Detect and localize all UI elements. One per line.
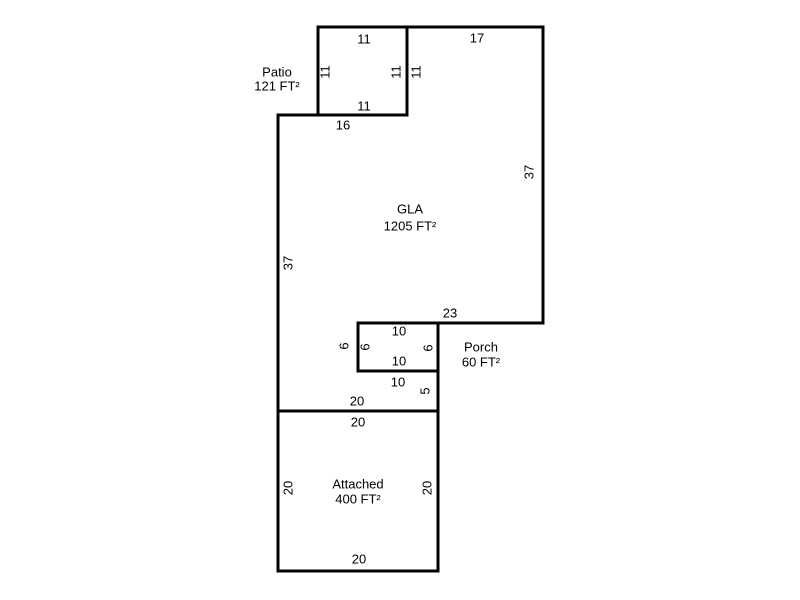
dim-label-0-11: 11 [357,32,371,47]
dim-label-6-16: 16 [336,118,350,133]
area-labels: Patio121 FT²GLA1205 FT²Porch60 FT²Attach… [254,65,501,507]
dim-label-15-10: 10 [391,375,405,390]
dim-label-18-20: 20 [351,415,365,430]
dim-label-10-10: 10 [392,324,406,339]
dim-label-7-37: 37 [281,256,296,270]
dim-label-12-6: 6 [358,343,373,350]
dim-label-21-20: 20 [352,552,366,567]
dim-label-11-6: 6 [337,342,352,349]
dim-label-4-11: 11 [409,65,424,79]
dim-label-1-17: 17 [470,31,484,46]
patio-label: Patio [262,65,292,80]
attached-area-value: 400 FT² [335,492,381,507]
dim-label-3-11: 11 [389,65,404,79]
floorplan-canvas: 1117111111111637372310666101052020202020… [0,0,800,600]
dim-label-13-6: 6 [421,344,436,351]
gla-area-value: 1205 FT² [384,219,437,234]
dim-label-5-11: 11 [357,99,371,114]
wall-outlines [278,27,543,571]
porch-label: Porch [464,340,498,355]
dim-label-2-11: 11 [318,65,333,79]
dim-label-20-20: 20 [420,481,435,495]
dim-label-17-20: 20 [350,394,364,409]
dim-label-9-23: 23 [443,306,457,321]
floorplan-page: 1117111111111637372310666101052020202020… [0,0,800,600]
attached-label: Attached [332,477,383,492]
porch-area-value: 60 FT² [462,355,501,370]
gla-label: GLA [397,202,423,217]
dim-label-16-5: 5 [418,387,433,394]
dim-label-19-20: 20 [281,481,296,495]
dim-label-14-10: 10 [392,354,406,369]
patio-area-value: 121 FT² [254,79,300,94]
dim-label-8-37: 37 [522,165,537,179]
